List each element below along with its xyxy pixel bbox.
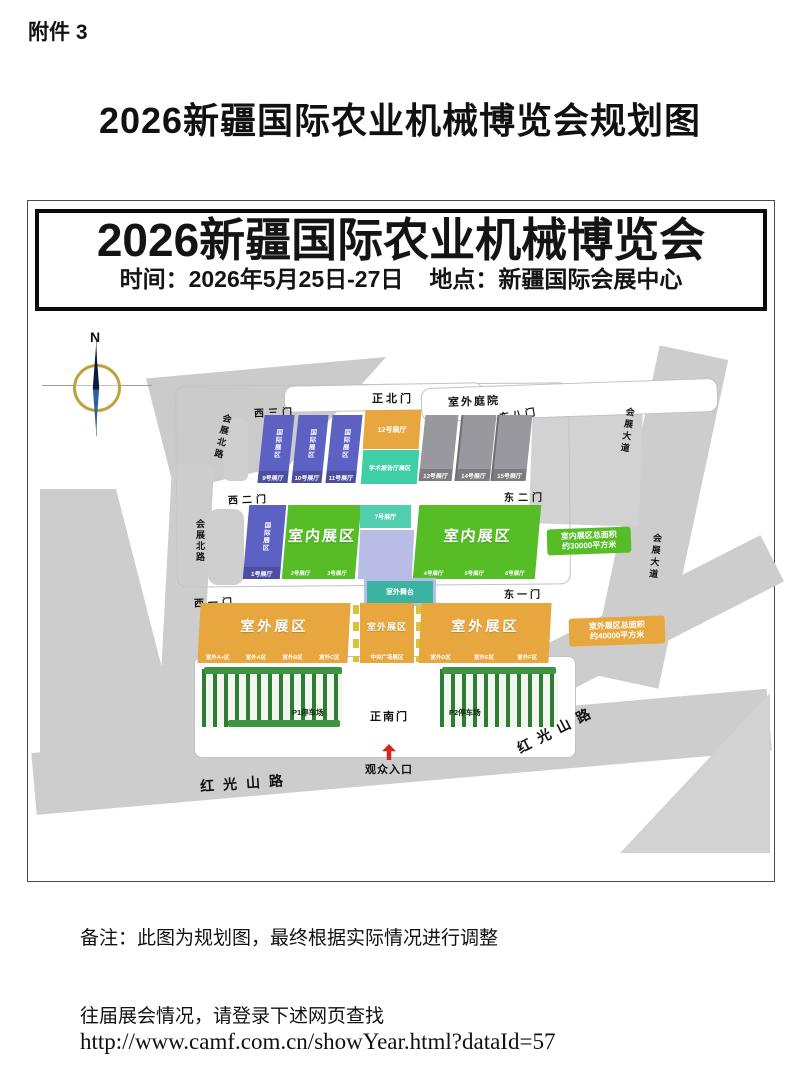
outdoor-center-title: 室外展区 xyxy=(360,603,414,649)
outdoor-zone-f: 室外F区 xyxy=(517,653,537,661)
parking-p1-bar2 xyxy=(228,720,340,727)
document-page: 附件 3 2026新疆国际农业机械博览会规划图 2026新疆国际农业机械博览会 … xyxy=(0,0,800,1077)
courtyard-label: 室外庭院 xyxy=(448,392,501,410)
hall-7: 7号展厅 xyxy=(360,505,411,528)
outdoor-note-line2: 约40000平方米 xyxy=(569,629,665,642)
hall-12-label: 12号展厅 xyxy=(377,425,406,435)
banner-venue: 地点：新疆国际会展中心 xyxy=(429,266,682,292)
indoor-east-title: 室内展区 xyxy=(414,505,541,565)
central-plaza-zone: 中央广场展区 xyxy=(370,653,403,661)
expo-banner: 2026新疆国际农业机械博览会 时间：2026年5月25日-27日 地点：新疆国… xyxy=(35,209,767,311)
hall-13-label: 13号展厅 xyxy=(419,469,453,481)
past-shows-text: 往届展会情况，请登录下述网页查找 xyxy=(80,1001,384,1028)
indoor-area-west: 室内展区 2号展厅 3号展厅 xyxy=(282,505,361,579)
outdoor-zone-a-plus: 室外A+区 xyxy=(206,653,230,661)
hall-10-zone: 国际展区 xyxy=(293,419,328,469)
parking-p2-stripes xyxy=(440,669,558,727)
hall-11-zone: 国际展区 xyxy=(327,419,362,469)
parking-p1-stripes xyxy=(202,669,342,727)
hall-9-zone: 国际展区 xyxy=(259,419,294,469)
hall-13: 13号展厅 xyxy=(419,415,459,481)
outdoor-zone-b: 室外B区 xyxy=(282,653,303,661)
hall-9-label: 9号展厅 xyxy=(257,471,288,483)
gate-post-left xyxy=(353,605,359,662)
outdoor-zone-a: 室外A区 xyxy=(246,653,267,661)
past-shows-url[interactable]: http://www.camf.com.cn/showYear.html?dat… xyxy=(80,1029,555,1055)
indoor-area-east: 室内展区 4号展厅 5号展厅 6号展厅 xyxy=(413,505,541,579)
note-text: 备注：此图为规划图，最终根据实际情况进行调整 xyxy=(80,923,498,950)
outdoor-zone-d: 室外D区 xyxy=(430,653,451,661)
outdoor-stage: 室外舞台 xyxy=(364,578,436,606)
gate-east1: 东一门 xyxy=(504,586,543,601)
hall-14: 14号展厅 xyxy=(455,415,497,481)
hall-11-label: 11号展厅 xyxy=(325,471,356,483)
page-title: 2026新疆国际农业机械博览会规划图 xyxy=(0,92,800,144)
hall-15: 15号展厅 xyxy=(491,415,533,481)
outdoor-zone-e: 室外E区 xyxy=(474,653,495,661)
outdoor-area-note: 室外展区总面积 约40000平方米 xyxy=(569,615,666,646)
hall-7-label: 7号展厅 xyxy=(375,512,396,521)
hall-5-label: 5号展厅 xyxy=(464,569,484,577)
outdoor-east-title: 室外展区 xyxy=(419,603,551,649)
parking-p1-label: P1停车场 xyxy=(292,707,324,718)
academic-hall-label: 学术报告厅展区 xyxy=(369,463,412,472)
road-huizhan-north-lower: 会展北路 xyxy=(194,519,207,581)
hall-6-label: 6号展厅 xyxy=(505,569,525,577)
outdoor-stage-label: 室外舞台 xyxy=(386,587,414,597)
banner-subtitle: 时间：2026年5月25日-27日 地点：新疆国际会展中心 xyxy=(39,266,763,292)
hall-14-label: 14号展厅 xyxy=(457,469,491,481)
indoor-area-note: 室内展区总面积 约30000平方米 xyxy=(547,527,632,556)
outdoor-area-east: 室外展区 室外D区 室外E区 室外F区 xyxy=(418,603,551,663)
parking-p1-bar xyxy=(204,667,342,674)
outdoor-west-title: 室外展区 xyxy=(198,603,350,649)
outdoor-area-west: 室外展区 室外A+区 室外A区 室外B区 室外C区 xyxy=(197,603,350,663)
academic-hall-block: 学术报告厅展区 xyxy=(361,450,419,484)
hall-12: 12号展厅 xyxy=(363,410,422,449)
gate-north-main: 正北门 xyxy=(372,390,414,406)
indoor-west-title: 室内展区 xyxy=(283,505,361,565)
hall-2-label: 2号展厅 xyxy=(290,569,310,577)
indoor-note-line2: 约30000平方米 xyxy=(547,540,631,553)
hall-10-label: 10号展厅 xyxy=(291,471,322,483)
hall-3-label: 3号展厅 xyxy=(327,569,347,577)
hall-1-zone: 国际展区 xyxy=(244,509,286,565)
hall-4-label: 4号展厅 xyxy=(423,569,443,577)
gate-east2: 东二门 xyxy=(504,489,546,504)
outdoor-zone-c: 室外C区 xyxy=(319,653,340,661)
hall-1: 国际展区 1号展厅 xyxy=(243,505,286,579)
parking-p2-bar xyxy=(442,667,556,674)
planning-map-figure: 2026新疆国际农业机械博览会 时间：2026年5月25日-27日 地点：新疆国… xyxy=(27,200,775,882)
gate-south-main: 正南门 xyxy=(370,708,409,724)
attachment-label: 附件 3 xyxy=(28,16,88,46)
lobby-block xyxy=(358,530,415,579)
parking-p2-label: P2停车场 xyxy=(449,707,481,718)
hall-1-label: 1号展厅 xyxy=(243,567,281,579)
outdoor-area-center: 室外展区 中央广场展区 xyxy=(360,603,414,663)
banner-title: 2026新疆国际农业机械博览会 xyxy=(39,214,763,266)
hall-15-label: 15号展厅 xyxy=(493,469,527,481)
visitor-entrance-label: 观众入口 xyxy=(365,761,413,777)
compass-north-label: N xyxy=(90,329,100,345)
banner-time: 时间：2026年5月25日-27日 xyxy=(120,266,404,292)
